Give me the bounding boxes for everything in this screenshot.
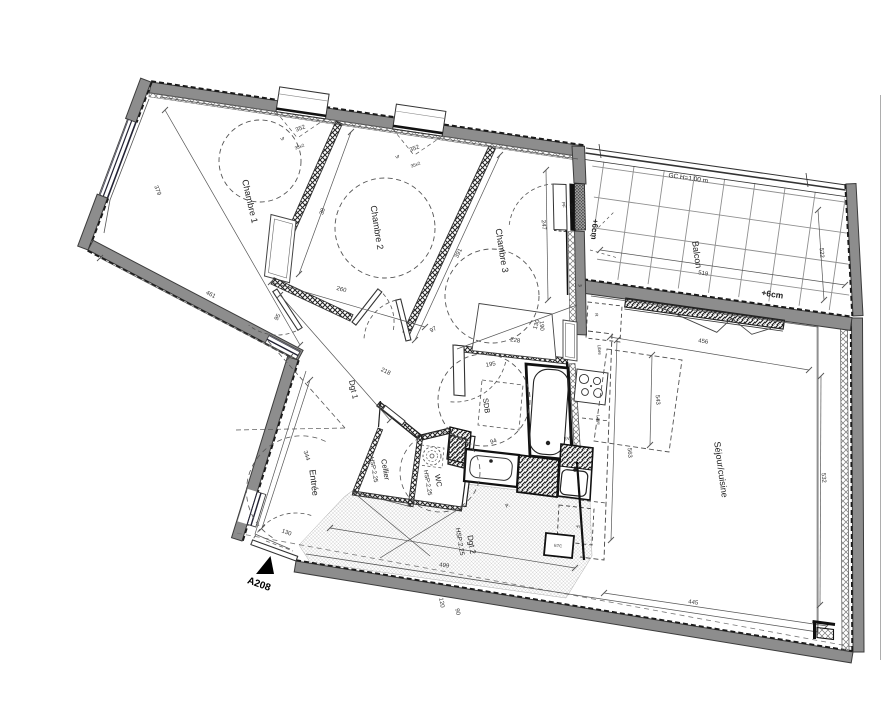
svg-text:+6cm: +6cm: [761, 288, 785, 301]
svg-text:94: 94: [489, 438, 498, 446]
svg-text:519: 519: [698, 270, 709, 277]
svg-text:95: 95: [274, 313, 283, 322]
svg-text:38: 38: [319, 207, 327, 216]
svg-text:391: 391: [454, 247, 464, 259]
svg-text:Balcon: Balcon: [690, 240, 704, 269]
svg-text:vr: vr: [280, 135, 286, 142]
svg-text:Chambre 1: Chambre 1: [240, 179, 260, 225]
svg-text:120: 120: [437, 597, 445, 609]
svg-text:R: R: [594, 313, 599, 317]
svg-text:90: 90: [453, 608, 460, 616]
svg-text:218: 218: [380, 367, 392, 377]
svg-text:VR2: VR2: [569, 203, 575, 213]
svg-text:35x2: 35x2: [294, 142, 305, 150]
svg-text:Lave: Lave: [596, 415, 602, 426]
svg-text:532: 532: [820, 473, 827, 484]
svg-text:352: 352: [295, 124, 307, 133]
svg-text:Entrée: Entrée: [307, 469, 320, 497]
svg-text:HSP:2.25: HSP:2.25: [422, 470, 432, 497]
svg-text:vr: vr: [395, 153, 401, 160]
svg-text:195: 195: [485, 361, 497, 369]
svg-text:456: 456: [698, 338, 709, 345]
svg-text:Chambre 2: Chambre 2: [369, 205, 386, 251]
svg-text:EV: EV: [563, 436, 570, 442]
svg-text:+6cm: +6cm: [589, 219, 600, 240]
svg-text:522: 522: [818, 248, 825, 259]
svg-text:SDB: SDB: [481, 397, 492, 413]
svg-text:HSP:2.25: HSP:2.25: [368, 457, 378, 484]
svg-text:A208: A208: [246, 575, 273, 594]
svg-text:344: 344: [302, 450, 311, 462]
svg-text:F: F: [574, 525, 580, 529]
svg-text:461: 461: [205, 290, 217, 300]
svg-text:GC H=1.00 m: GC H=1.00 m: [668, 172, 709, 185]
svg-text:563: 563: [626, 448, 633, 459]
svg-text:Chambre 3: Chambre 3: [494, 228, 511, 274]
svg-text:Libre: Libre: [597, 345, 603, 356]
svg-text:97: 97: [429, 326, 438, 335]
svg-text:Dgt 1: Dgt 1: [347, 379, 360, 400]
svg-text:260: 260: [336, 286, 348, 295]
svg-text:543: 543: [654, 395, 661, 406]
svg-text:Cellier: Cellier: [379, 458, 392, 481]
svg-text:247: 247: [540, 220, 547, 231]
svg-text:WC: WC: [433, 474, 444, 488]
svg-text:130: 130: [281, 529, 293, 538]
svg-text:379: 379: [152, 185, 161, 197]
svg-text:Séjour/cuisine: Séjour/cuisine: [712, 441, 730, 498]
svg-text:PF: PF: [561, 202, 567, 208]
svg-text:35x2: 35x2: [410, 160, 421, 168]
